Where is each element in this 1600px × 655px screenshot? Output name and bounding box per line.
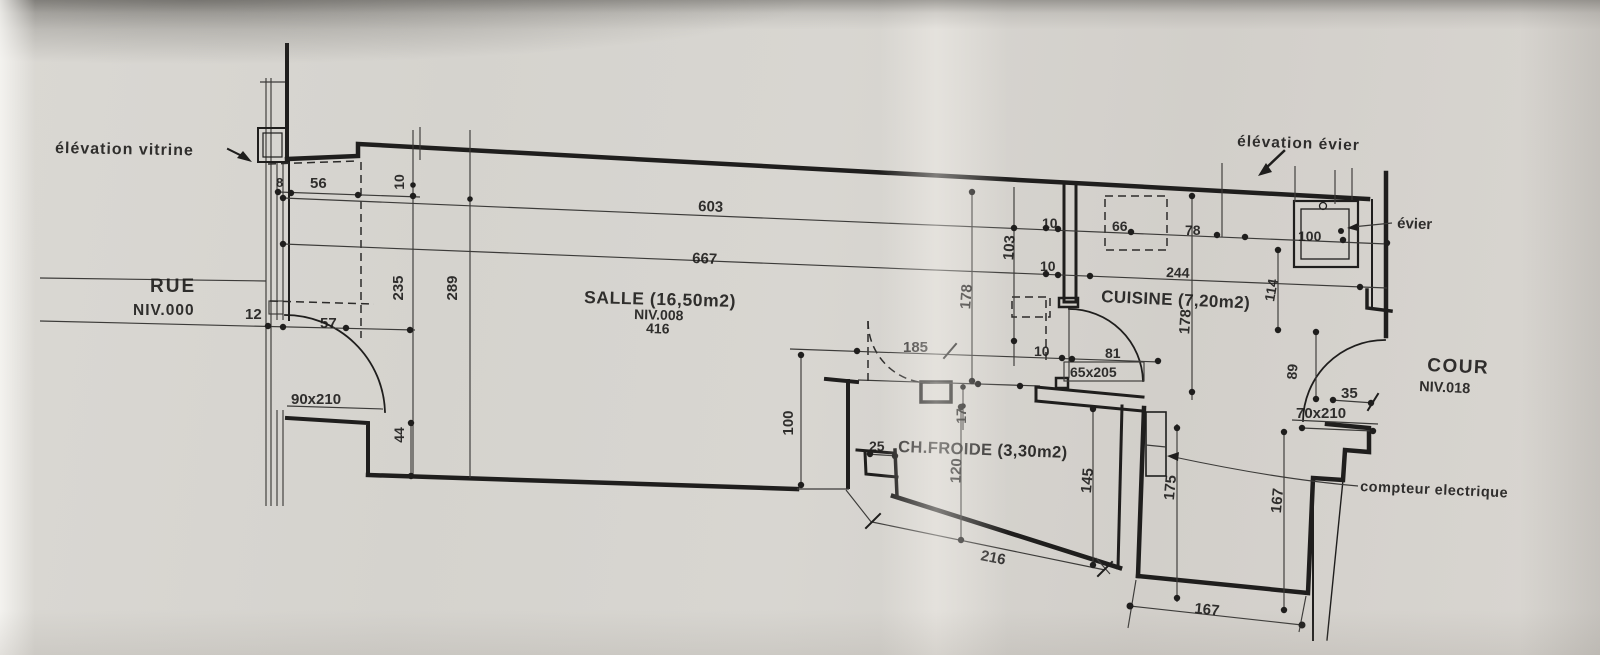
dim-10-step: 10 — [391, 174, 407, 190]
dim-89: 89 — [1283, 363, 1300, 380]
dim-17: 17 — [953, 408, 969, 424]
salle-cuisine-divider-wall — [1064, 183, 1076, 302]
dim-70x210: 70x210 — [1296, 405, 1346, 422]
door-swings — [285, 309, 1385, 421]
dim-289: 289 — [444, 275, 461, 300]
dim-216: 216 — [979, 547, 1007, 568]
dim-178-salle: 178 — [957, 284, 976, 310]
dim-100-left: 100 — [780, 410, 797, 435]
dim-8: 8 — [276, 175, 283, 190]
dim-57: 57 — [320, 315, 337, 332]
salle-south-wall-left — [826, 379, 857, 382]
elevation-vitrine-label: élévation vitrine — [55, 140, 194, 159]
dim-167-v: 167 — [1268, 487, 1287, 513]
dim-81: 81 — [1105, 345, 1121, 361]
dim-35: 35 — [1341, 385, 1358, 402]
dim-185: 185 — [903, 339, 928, 356]
north-wall — [287, 144, 1368, 199]
dim-25: 25 — [869, 438, 885, 454]
compteur-leader-arrow — [1167, 452, 1179, 461]
compteur-leader — [1174, 457, 1358, 486]
vitrine-arrow-head — [237, 151, 252, 162]
dim-10-lower: 10 — [1040, 258, 1056, 274]
cour-level: NIV.018 — [1419, 379, 1471, 397]
cour-label: COUR — [1427, 355, 1490, 379]
dim-12: 12 — [245, 306, 262, 323]
dim-175: 175 — [1161, 474, 1180, 500]
dim-10-door: 10 — [1034, 343, 1050, 359]
labels: élévation vitrine élévation évier évier … — [55, 133, 1509, 620]
scanned-floor-plan: élévation vitrine élévation évier évier … — [0, 0, 1600, 655]
ch-froide-label: CH.FROIDE (3,30m2) — [898, 438, 1068, 462]
chfroide-right-wall-inner — [1118, 406, 1122, 568]
dim-56: 56 — [310, 175, 327, 192]
floor-plan-drawing: élévation vitrine élévation évier évier … — [0, 0, 1600, 655]
dim-103: 103 — [1000, 235, 1019, 261]
dim-65x205: 65x205 — [1070, 364, 1117, 380]
dim-120: 120 — [947, 458, 965, 484]
facade-glazing — [269, 161, 289, 506]
chfroide-right-wall-outer — [1138, 408, 1144, 576]
walls — [258, 45, 1391, 640]
dim-90x210: 90x210 — [291, 391, 341, 408]
salle-south-wall — [368, 475, 797, 489]
dim-145: 145 — [1078, 467, 1097, 493]
kitchen-door-hinge-block — [1056, 378, 1068, 388]
salle-extra: 416 — [646, 320, 670, 337]
dim-603: 603 — [698, 198, 724, 216]
sink-tap-icon — [1338, 228, 1344, 234]
chfroide-bottom-diagonal-wall — [893, 496, 1120, 568]
dim-178-cuisine: 178 — [1176, 309, 1195, 335]
rue-level: NIV.000 — [133, 302, 195, 319]
dim-244: 244 — [1166, 264, 1190, 281]
compteur-label: compteur electrique — [1360, 479, 1509, 501]
dim-10-upper: 10 — [1042, 215, 1058, 231]
dim-66: 66 — [1112, 218, 1128, 234]
dim-44: 44 — [391, 427, 407, 443]
cuisine-label: CUISINE (7,20m2) — [1101, 287, 1251, 312]
electric-meter-box — [1146, 412, 1166, 476]
chfroide-top-wall — [1036, 387, 1143, 397]
rue-label: RUE — [150, 276, 196, 297]
evier-label: évier — [1397, 215, 1433, 233]
dim-235: 235 — [390, 275, 407, 300]
door-stub-wall — [921, 382, 951, 402]
dim-100-sink: 100 — [1298, 228, 1322, 244]
elevation-evier-label: élévation évier — [1237, 133, 1360, 154]
dim-167-h: 167 — [1194, 600, 1221, 620]
salle-southwest-step — [287, 418, 368, 475]
dimension-markers — [265, 182, 1390, 628]
dim-667: 667 — [692, 250, 718, 268]
dim-78: 78 — [1185, 222, 1201, 238]
